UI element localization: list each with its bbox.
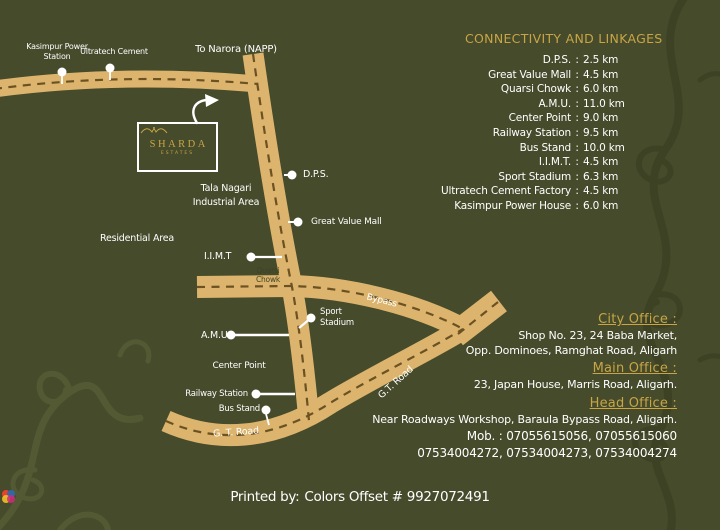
connectivity-label: Railway Station — [431, 126, 571, 141]
connectivity-value: 6.3 km — [583, 170, 645, 185]
connectivity-colon: : — [571, 111, 583, 126]
connectivity-value: 11.0 km — [583, 97, 645, 112]
label-kasimpur-power-station: Kasimpur Power Station — [26, 42, 88, 63]
sharda-crest-icon — [139, 124, 169, 135]
connectivity-value: 10.0 km — [583, 141, 645, 156]
label-to-narora: To Narora (NAPP) — [195, 44, 277, 56]
head-office-line: Near Roadways Workshop, Baraula Bypass R… — [372, 413, 677, 428]
connectivity-row: Bus Stand : 10.0 km — [431, 141, 645, 156]
sharda-logo-subtitle: ESTATES — [161, 151, 194, 156]
connectivity-colon: : — [571, 126, 583, 141]
connectivity-row: Ultratech Cement Factory : 4.5 km — [431, 184, 645, 199]
connectivity-colon: : — [571, 155, 583, 170]
connectivity-value: 4.5 km — [583, 155, 645, 170]
connectivity-colon: : — [571, 199, 583, 214]
printed-by-label: Printed by: — [230, 489, 299, 505]
sharda-logo-name: SHARDA — [150, 139, 208, 150]
connectivity-label: Sport Stadium — [431, 170, 571, 185]
connectivity-value: 2.5 km — [583, 53, 645, 68]
connectivity-colon: : — [571, 53, 583, 68]
city-office-heading: City Office : — [372, 312, 677, 327]
connectivity-label: I.I.M.T. — [431, 155, 571, 170]
connectivity-row: Center Point : 9.0 km — [431, 111, 645, 126]
connectivity-label: Kasimpur Power House — [431, 199, 571, 214]
connectivity-label: Quarsi Chowk — [431, 82, 571, 97]
label-railway-station: Railway Station — [180, 389, 248, 399]
site-arrow — [193, 94, 219, 123]
label-center-point: Center Point — [212, 361, 265, 372]
dps-dot — [284, 171, 297, 180]
connectivity-row: A.M.U. : 11.0 km — [431, 97, 645, 112]
connectivity-colon: : — [571, 184, 583, 199]
connectivity-value: 4.5 km — [583, 68, 645, 83]
offices-block: City Office : Shop No. 23, 24 Baba Marke… — [372, 309, 677, 461]
connectivity-colon: : — [571, 141, 583, 156]
label-ultratech-cement: Ultratech Cement — [80, 47, 148, 57]
connectivity-label: Bus Stand — [431, 141, 571, 156]
connectivity-row: Kasimpur Power House : 6.0 km — [431, 199, 645, 214]
label-great-value-mall: Great Value Mall — [311, 217, 382, 228]
connectivity-label: Ultratech Cement Factory — [431, 184, 571, 199]
mobile-numbers-line2: 07534004272, 07534004273, 07534004274 — [372, 445, 677, 461]
colors-offset-logo-icon — [0, 489, 16, 504]
connectivity-row: Quarsi Chowk : 6.0 km — [431, 82, 645, 97]
connectivity-list: D.P.S. : 2.5 km Great Value Mall : 4.5 k… — [431, 53, 645, 214]
connectivity-colon: : — [571, 97, 583, 112]
city-office-line: Shop No. 23, 24 Baba Market, — [372, 329, 677, 344]
connectivity-row: Railway Station : 9.5 km — [431, 126, 645, 141]
main-office-heading: Main Office : — [372, 361, 677, 376]
connectivity-colon: : — [571, 82, 583, 97]
label-bus-stand: Bus Stand — [200, 404, 260, 414]
connectivity-value: 4.5 km — [583, 184, 645, 199]
label-tala-nagari: Tala Nagari Industrial Area — [186, 182, 266, 210]
label-dps: D.P.S. — [303, 169, 328, 180]
connectivity-colon: : — [571, 68, 583, 83]
connectivity-label: D.P.S. — [431, 53, 571, 68]
connectivity-row: Sport Stadium : 6.3 km — [431, 170, 645, 185]
connectivity-label: Great Value Mall — [431, 68, 571, 83]
connectivity-label: A.M.U. — [431, 97, 571, 112]
poster-map: To Narora (NAPP) Kasimpur Power Station … — [0, 0, 720, 530]
city-office-line: Opp. Dominoes, Ramghat Road, Aligarh — [372, 344, 677, 359]
mobile-numbers-line1: Mob. : 07055615056, 07055615060 — [372, 428, 677, 444]
main-office-line: 23, Japan House, Marris Road, Aligarh. — [372, 378, 677, 393]
railway-station-dot — [252, 390, 296, 399]
head-office-heading: Head Office : — [372, 396, 677, 411]
connectivity-row: D.P.S. : 2.5 km — [431, 53, 645, 68]
connectivity-label: Center Point — [431, 111, 571, 126]
amu-dot — [227, 331, 290, 340]
connectivity-value: 6.0 km — [583, 199, 645, 214]
connectivity-heading: CONNECTIVITY AND LINKAGES — [465, 31, 663, 46]
sharda-logo-box: SHARDA ESTATES — [137, 122, 218, 172]
footer: Printed by: Colors Offset # 9927072491 — [0, 489, 720, 505]
connectivity-value: 9.5 km — [583, 126, 645, 141]
printer-name-and-phone: Colors Offset # 9927072491 — [304, 489, 489, 505]
connectivity-value: 6.0 km — [583, 82, 645, 97]
label-quarsi-chowk: Quarsi Chowk — [250, 266, 286, 284]
label-residential-area: Residential Area — [100, 233, 174, 244]
label-amu: A.M.U. — [201, 330, 230, 341]
label-sport-stadium: Sport Stadium — [320, 307, 362, 329]
label-iimt: I.I.M.T — [204, 251, 231, 262]
connectivity-value: 9.0 km — [583, 111, 645, 126]
connectivity-row: I.I.M.T. : 4.5 km — [431, 155, 645, 170]
connectivity-row: Great Value Mall : 4.5 km — [431, 68, 645, 83]
connectivity-colon: : — [571, 170, 583, 185]
